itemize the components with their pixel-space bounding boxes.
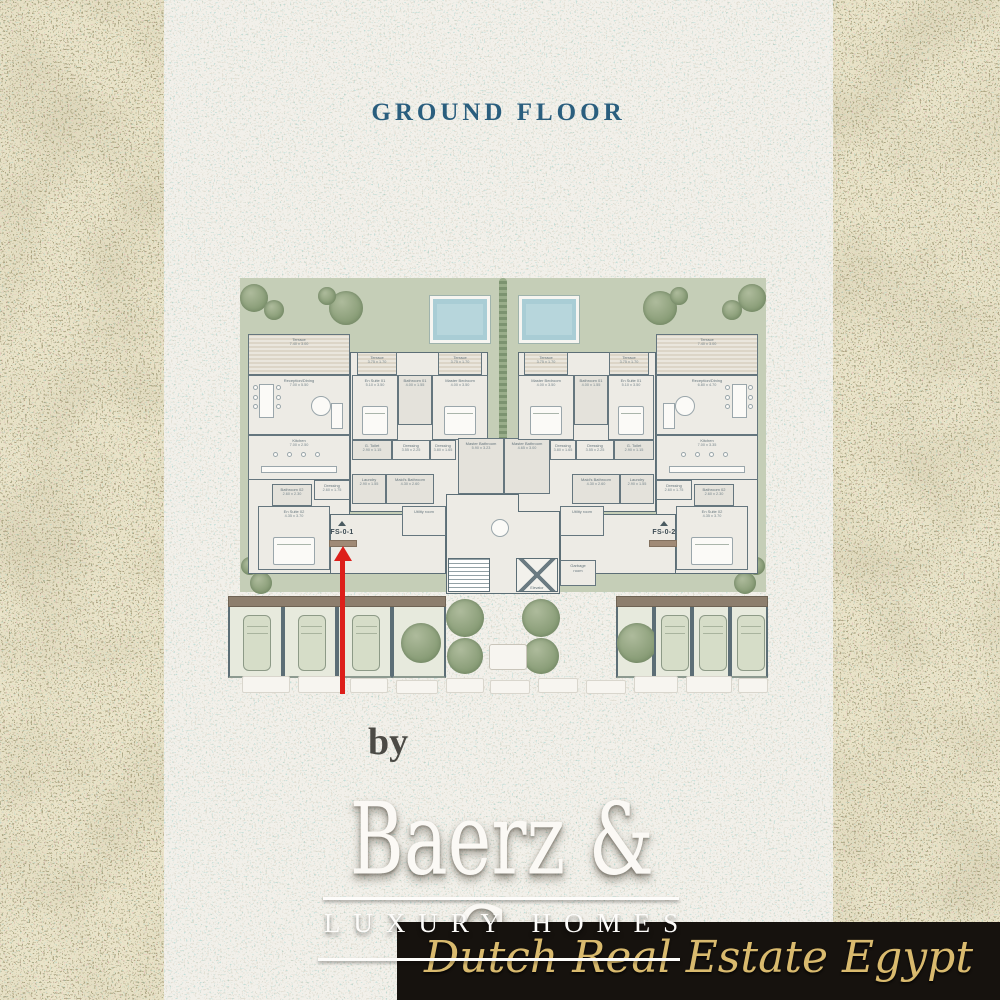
parking-right — [616, 596, 768, 678]
room-bath02-r: Bathroom 022.60 x 2.30 — [694, 484, 734, 506]
parking-left — [228, 596, 446, 678]
room-dressing2-r: Dressing3.80 x 1.65 — [550, 440, 576, 460]
room-dims: 3.80 x 1.65 — [434, 448, 453, 453]
room-dims: 5.10 x 3.50 — [622, 383, 641, 388]
room-dims: 3.80 x 1.65 — [554, 448, 573, 453]
bay-tree — [617, 623, 657, 663]
paving-stone — [242, 676, 290, 693]
room-dressing3-l: Dressing2.60 x 1.75 — [314, 480, 350, 500]
room-dims: 2.90 x 1.15 — [363, 448, 382, 453]
room-terrace-ensuite-r: Terrace3.75 x 1.70 — [609, 352, 649, 375]
room-dims: 7.00 x 2.50 — [290, 443, 309, 448]
paving-stone — [686, 676, 732, 693]
chair — [276, 395, 281, 400]
bed — [362, 406, 388, 435]
room-dims: 5.90 x 3.23 — [472, 446, 491, 451]
chair — [725, 395, 730, 400]
room-master-r: Master Bedroom4.00 x 3.50 — [518, 375, 574, 440]
pergola-roof-bar — [616, 596, 768, 607]
garden-tree — [722, 300, 742, 320]
room-dressing1-r: Dressing3.55 x 2.25 — [576, 440, 614, 460]
sofa — [663, 403, 675, 429]
chair — [748, 385, 753, 390]
garden-tree — [264, 300, 284, 320]
paving-stone — [396, 680, 438, 694]
room-dims: 2.90 x 1.15 — [625, 448, 644, 453]
room-dims: 4.00 x 3.50 — [537, 383, 556, 388]
swimming-pool-1 — [430, 296, 490, 343]
stool — [301, 452, 306, 457]
stool — [709, 452, 714, 457]
stool — [273, 452, 278, 457]
paving-stone — [350, 678, 388, 693]
room-dims: 7.00 x 5.50 — [290, 383, 309, 388]
floor-plan: Terrace7.40 x 3.00Reception/Dining7.00 x… — [228, 278, 778, 698]
parked-car — [737, 615, 765, 671]
room-dims: 2.90 x 1.55 — [360, 482, 379, 487]
bed — [691, 537, 733, 566]
dining-table — [732, 384, 747, 418]
chair — [725, 404, 730, 409]
room-dressing1-l: Dressing3.55 x 2.25 — [392, 440, 430, 460]
garbage-room-label: Garbage room — [570, 563, 586, 573]
bed — [618, 406, 644, 435]
room-dressing3-r: Dressing2.60 x 1.75 — [656, 480, 692, 500]
watermark-tagline: LUXURY HOMES — [281, 908, 721, 939]
parking-bay — [392, 607, 447, 678]
parking-bay — [283, 607, 338, 678]
room-reception-l: Reception/Dining7.00 x 5.50 — [248, 375, 350, 435]
garden-tree — [738, 284, 766, 312]
parking-bay — [228, 607, 283, 678]
room-bath02-l: Bathroom 022.60 x 2.30 — [272, 484, 312, 506]
stool — [723, 452, 728, 457]
chair — [253, 404, 258, 409]
parking-bay — [692, 607, 730, 678]
chair — [276, 404, 281, 409]
paving-stone — [298, 676, 342, 693]
room-bath01-r: Bathroom 014.00 x 1.55 — [574, 375, 608, 425]
room-maids-l: Maid's Bathroom4.30 x 2.60 — [386, 474, 434, 504]
room-dims: 3.55 x 2.25 — [586, 448, 605, 453]
paving-stone — [634, 676, 678, 693]
unit-label-fs-0-1: FS-0-1 — [318, 529, 366, 536]
room-dims: 3.75 x 1.70 — [368, 360, 387, 365]
bay-tree — [401, 623, 441, 663]
page-title: GROUND FLOOR — [164, 99, 833, 127]
room-dims: 4.00 x 3.50 — [451, 383, 470, 388]
staircase — [448, 558, 490, 592]
room-ensuite01-l: En Suite 015.10 x 3.50 — [352, 375, 398, 440]
room-utility-l: Utility room — [402, 506, 446, 536]
bed — [273, 537, 315, 566]
chair — [725, 385, 730, 390]
paving-stone — [538, 678, 578, 693]
parked-car — [661, 615, 689, 671]
room-masterbath-l: Master Bathroom5.90 x 3.23 — [458, 438, 504, 494]
room-gtoilet-l: G. Toilet2.90 x 1.15 — [352, 440, 392, 460]
room-dims: 7.40 x 3.00 — [698, 342, 717, 347]
room-dims: 3.75 x 1.70 — [537, 360, 556, 365]
room-terrace-master-l: Terrace3.75 x 1.70 — [438, 352, 482, 375]
paving-stone — [490, 680, 530, 694]
parking-bay — [337, 607, 392, 678]
floorplan-sheet: GROUND FLOOR Terrace7.40 x 3.00Reception… — [0, 0, 1000, 1000]
room-terrace-main-r: Terrace7.40 x 3.00 — [656, 334, 758, 375]
garden-tree — [318, 287, 336, 305]
room-dims: 4.35 x 3.70 — [703, 514, 722, 519]
room-label: Utility room — [414, 509, 434, 514]
room-label: Utility room — [572, 509, 592, 514]
parking-bay — [616, 607, 654, 678]
dining-table — [259, 384, 274, 418]
room-dims: 4.30 x 2.60 — [401, 482, 420, 487]
room-terrace-master-r: Terrace3.75 x 1.70 — [524, 352, 568, 375]
courtyard-tree — [446, 599, 484, 637]
elevator: Elevator — [516, 558, 558, 592]
room-laundry-l: Laundry2.90 x 1.55 — [352, 474, 386, 504]
paving-stone — [738, 678, 768, 693]
doormat — [649, 540, 677, 547]
parked-car — [699, 615, 727, 671]
plaza-table — [491, 519, 509, 537]
room-dims: 4.65 x 3.00 — [518, 446, 537, 451]
chair — [253, 385, 258, 390]
parked-car — [298, 615, 326, 671]
room-kitchen-r: Kitchen7.00 x 3.35 — [656, 435, 758, 480]
room-masterbath-r: Master Bathroom4.65 x 3.00 — [504, 438, 550, 494]
room-dims: 6.80 x 4.70 — [698, 383, 717, 388]
room-dims: 2.90 x 1.55 — [628, 482, 647, 487]
room-utility-r: Utility room — [560, 506, 604, 536]
room-terrace-ensuite-l: Terrace3.75 x 1.70 — [357, 352, 397, 375]
room-reception-r: Reception/Dining6.80 x 4.70 — [656, 375, 758, 435]
room-dims: 5.10 x 3.50 — [366, 383, 385, 388]
room-dims: 2.60 x 2.30 — [283, 492, 302, 497]
watermark-rule-top — [323, 897, 679, 900]
unit-label-fs-0-2: FS-0-2 — [640, 529, 688, 536]
bed — [530, 406, 562, 435]
garden-tree — [250, 572, 272, 594]
stool — [681, 452, 686, 457]
stool — [315, 452, 320, 457]
sofa — [331, 403, 343, 429]
room-terrace-main-l: Terrace7.40 x 3.00 — [248, 334, 350, 375]
parking-bay — [654, 607, 692, 678]
bed — [444, 406, 476, 435]
room-ensuite01-r: En Suite 015.10 x 3.50 — [608, 375, 654, 440]
room-ensuite02-r: En Suite 024.35 x 3.70 — [676, 506, 748, 570]
room-dims: 4.00 x 1.55 — [582, 383, 601, 388]
room-ensuite02-l: En Suite 024.35 x 3.70 — [258, 506, 330, 570]
room-dims: 3.75 x 1.70 — [620, 360, 639, 365]
roof-mark — [660, 521, 668, 526]
garden-tree — [734, 572, 756, 594]
room-dims: 3.75 x 1.70 — [451, 360, 470, 365]
parked-car — [352, 615, 380, 671]
parking-bay — [730, 607, 768, 678]
roof-mark — [338, 521, 346, 526]
round-table — [311, 396, 331, 416]
room-dims: 2.60 x 2.30 — [705, 492, 724, 497]
room-dims: 4.35 x 3.70 — [285, 514, 304, 519]
room-master-l: Master Bedroom4.00 x 3.50 — [432, 375, 488, 440]
room-dims: 3.55 x 2.25 — [402, 448, 421, 453]
chair — [276, 385, 281, 390]
room-bath01-l: Bathroom 014.00 x 1.55 — [398, 375, 432, 425]
room-dims: 2.60 x 1.75 — [323, 488, 342, 493]
paving-stone — [586, 680, 626, 694]
pergola-roof-bar — [228, 596, 446, 607]
garbage-room: Garbage room — [560, 560, 596, 586]
garden-tree — [670, 287, 688, 305]
courtyard-bench — [489, 644, 527, 670]
paving-stone — [446, 678, 484, 693]
locator-arrow-head — [334, 546, 352, 561]
room-dressing2-l: Dressing3.80 x 1.65 — [430, 440, 456, 460]
central-hedge — [499, 278, 507, 446]
parked-car — [243, 615, 271, 671]
kitchen-island — [669, 466, 745, 473]
swimming-pool-2 — [519, 296, 579, 343]
room-dims: 7.40 x 3.00 — [290, 342, 309, 347]
room-dims: 4.00 x 1.55 — [406, 383, 425, 388]
chair — [253, 395, 258, 400]
stool — [695, 452, 700, 457]
room-dims: 2.60 x 1.75 — [665, 488, 684, 493]
round-table — [675, 396, 695, 416]
room-laundry-r: Laundry2.90 x 1.55 — [620, 474, 654, 504]
courtyard-tree — [522, 599, 560, 637]
room-dims: 7.00 x 3.35 — [698, 443, 717, 448]
watermark-by: by — [368, 720, 408, 764]
chair — [748, 395, 753, 400]
room-kitchen-l: Kitchen7.00 x 2.50 — [248, 435, 350, 480]
watermark-rule-bottom — [318, 958, 680, 961]
room-gtoilet-r: G. Toilet2.90 x 1.15 — [614, 440, 654, 460]
room-dims: 4.30 x 2.60 — [587, 482, 606, 487]
elevator-label: Elevator — [517, 586, 557, 590]
chair — [748, 404, 753, 409]
kitchen-island — [261, 466, 337, 473]
courtyard-tree — [523, 638, 559, 674]
courtyard-tree — [447, 638, 483, 674]
locator-arrow-shaft — [340, 558, 345, 694]
stool — [287, 452, 292, 457]
room-maids-r: Maid's Bathroom4.30 x 2.60 — [572, 474, 620, 504]
